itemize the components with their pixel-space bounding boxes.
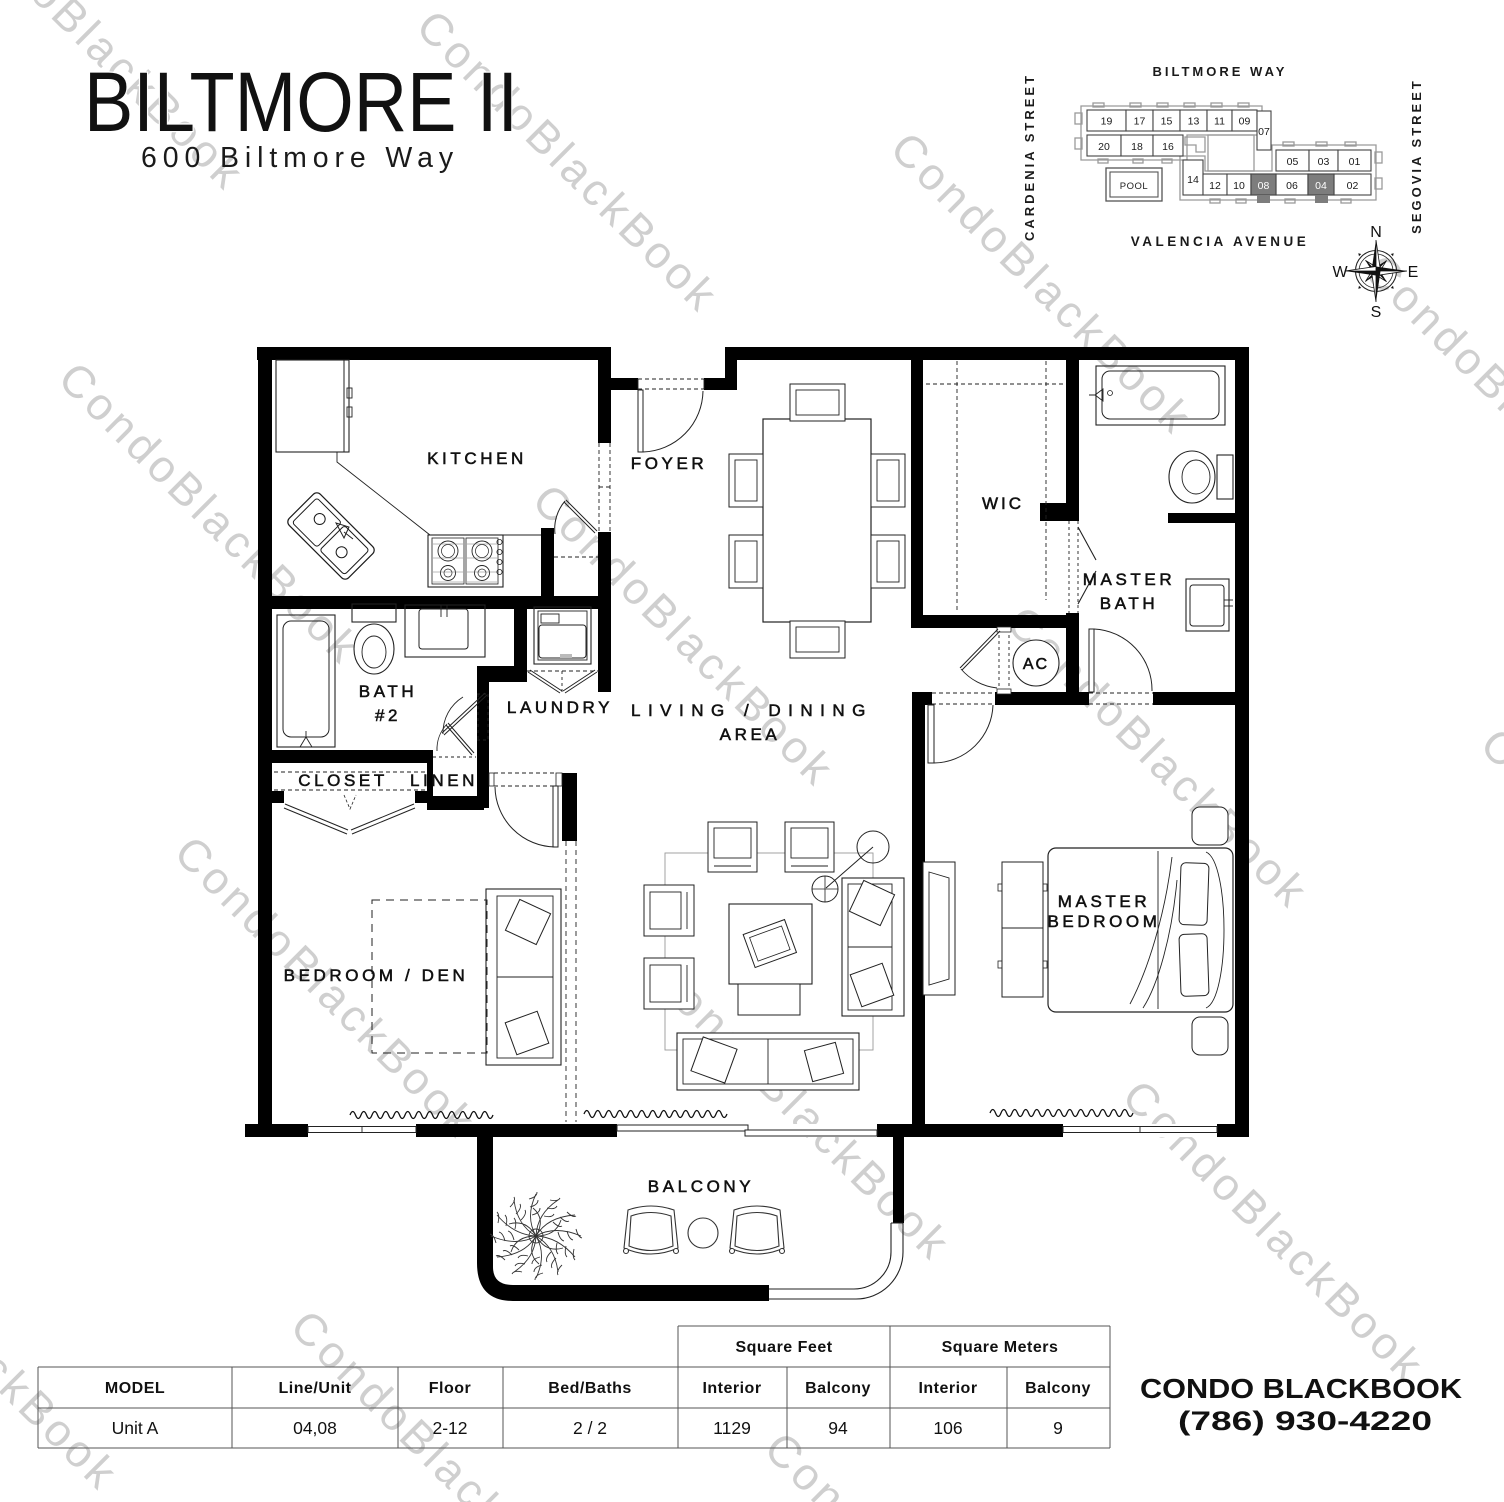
svg-text:17: 17	[1134, 116, 1146, 128]
svg-text:W: W	[1332, 264, 1348, 281]
svg-text:2-12: 2-12	[432, 1418, 467, 1438]
svg-text:07: 07	[1258, 126, 1270, 138]
svg-text:BEDROOM / DEN: BEDROOM / DEN	[284, 966, 469, 985]
svg-text:20: 20	[1098, 141, 1110, 153]
svg-text:LAUNDRY: LAUNDRY	[507, 698, 613, 717]
svg-text:03: 03	[1318, 156, 1330, 168]
svg-text:BALCONY: BALCONY	[648, 1177, 754, 1196]
svg-text:04,08: 04,08	[293, 1418, 337, 1438]
svg-text:94: 94	[828, 1418, 848, 1438]
svg-text:Square Meters: Square Meters	[942, 1339, 1059, 1356]
svg-text:(786) 930-4220: (786) 930-4220	[1178, 1406, 1432, 1436]
svg-text:Bed/Baths: Bed/Baths	[548, 1380, 632, 1397]
svg-text:18: 18	[1131, 141, 1143, 153]
svg-text:BILTMORE II: BILTMORE II	[84, 55, 518, 149]
svg-text:BILTMORE WAY: BILTMORE WAY	[1153, 64, 1288, 79]
svg-text:Line/Unit: Line/Unit	[279, 1380, 352, 1397]
svg-text:KITCHEN: KITCHEN	[427, 449, 527, 468]
svg-text:10: 10	[1233, 180, 1245, 192]
svg-text:1129: 1129	[713, 1418, 751, 1438]
svg-text:106: 106	[933, 1418, 962, 1438]
svg-text:LINEN: LINEN	[410, 771, 478, 790]
svg-text:Interior: Interior	[918, 1380, 977, 1397]
svg-text:06: 06	[1286, 180, 1298, 192]
svg-text:SEGOVIA STREET: SEGOVIA STREET	[1409, 78, 1424, 234]
svg-text:CONDO BLACKBOOK: CONDO BLACKBOOK	[1140, 1373, 1462, 1404]
svg-text:Balcony: Balcony	[1025, 1380, 1091, 1397]
svg-text:BATH: BATH	[1100, 594, 1158, 613]
svg-text:BATH: BATH	[359, 682, 417, 701]
svg-text:LIVING / DINING: LIVING / DINING	[631, 701, 869, 720]
svg-text:11: 11	[1214, 116, 1225, 128]
svg-text:600 Biltmore Way: 600 Biltmore Way	[141, 142, 459, 174]
svg-text:09: 09	[1239, 116, 1251, 128]
svg-text:Floor: Floor	[429, 1380, 472, 1397]
svg-text:S: S	[1371, 304, 1382, 321]
svg-text:BEDROOM: BEDROOM	[1047, 912, 1160, 931]
svg-text:2 / 2: 2 / 2	[573, 1418, 607, 1438]
svg-text:9: 9	[1053, 1418, 1063, 1438]
svg-text:01: 01	[1349, 156, 1361, 168]
svg-text:CARDENIA STREET: CARDENIA STREET	[1022, 73, 1037, 241]
svg-text:MASTER: MASTER	[1058, 892, 1150, 911]
svg-text:FOYER: FOYER	[631, 454, 708, 473]
svg-text:Interior: Interior	[702, 1380, 761, 1397]
svg-text:15: 15	[1161, 116, 1173, 128]
svg-text:14: 14	[1187, 174, 1199, 186]
svg-text:12: 12	[1209, 180, 1221, 192]
svg-text:#2: #2	[375, 706, 401, 725]
svg-text:16: 16	[1162, 141, 1174, 153]
svg-text:Square Feet: Square Feet	[735, 1339, 832, 1356]
svg-text:08: 08	[1258, 180, 1270, 192]
svg-text:02: 02	[1347, 180, 1359, 192]
svg-text:Balcony: Balcony	[805, 1380, 871, 1397]
svg-text:AC: AC	[1023, 656, 1049, 673]
svg-text:N: N	[1370, 224, 1382, 241]
svg-text:AREA: AREA	[720, 725, 781, 744]
svg-text:POOL: POOL	[1120, 181, 1148, 192]
svg-text:19: 19	[1101, 116, 1113, 128]
svg-text:VALENCIA AVENUE: VALENCIA AVENUE	[1131, 234, 1310, 249]
svg-text:E: E	[1408, 264, 1419, 281]
svg-text:Unit A: Unit A	[112, 1418, 159, 1438]
svg-text:04: 04	[1315, 180, 1327, 192]
svg-text:05: 05	[1287, 156, 1299, 168]
svg-text:WIC: WIC	[982, 494, 1024, 513]
svg-text:MODEL: MODEL	[105, 1380, 165, 1397]
svg-text:13: 13	[1188, 116, 1200, 128]
svg-text:MASTER: MASTER	[1083, 570, 1175, 589]
svg-text:CLOSET: CLOSET	[298, 771, 388, 790]
